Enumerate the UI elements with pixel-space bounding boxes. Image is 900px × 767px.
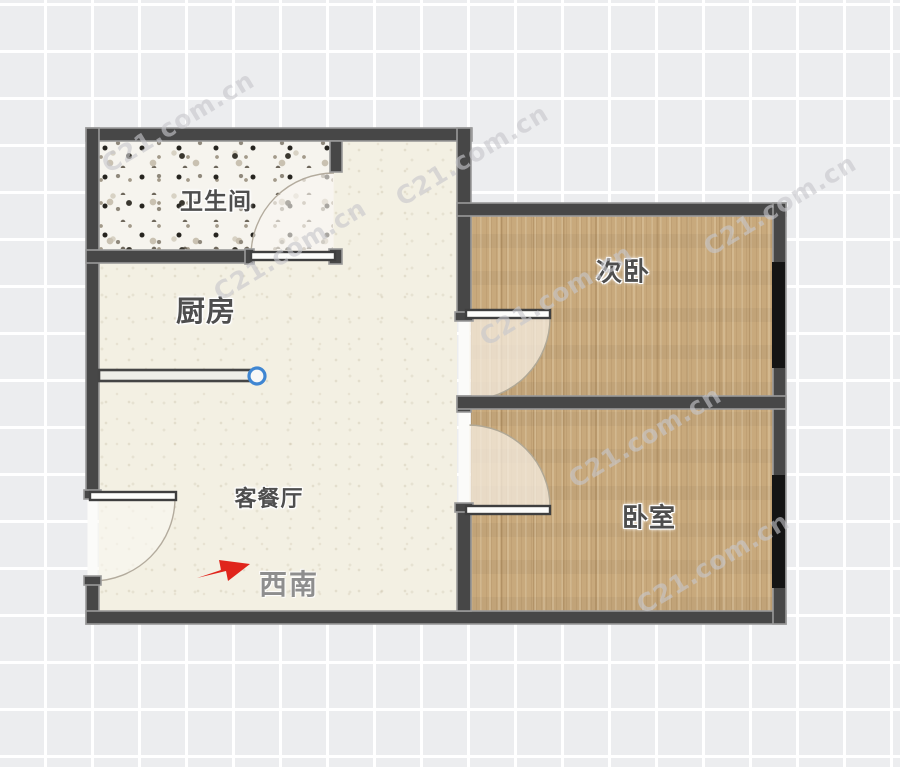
bedroom-door-swing [468,425,550,507]
orientation-arrow-icon[interactable] [197,560,250,581]
room-label-kitchen: 厨房 [176,288,236,330]
plan-drawing [0,0,900,767]
room-label-living-dining: 客餐厅 [234,481,303,513]
bathroom-door-leaf[interactable] [251,252,335,260]
kitchen-half-wall[interactable] [99,370,256,381]
bedroom-window[interactable] [772,475,785,588]
bathroom-door-swing [251,173,334,256]
second-bedroom-opening [459,320,470,397]
entrance-door-swing [92,498,175,581]
wall-top-left-section[interactable] [86,128,472,141]
orientation-label: 西南 [259,563,319,603]
wall-bottom[interactable] [86,611,786,624]
wall-cap-entrance-bottom [84,576,101,585]
wall-divider-lower[interactable] [457,505,471,611]
room-label-bedroom: 卧室 [622,498,676,535]
selection-handle[interactable] [249,368,265,384]
bedroom-door-leaf[interactable] [466,506,550,514]
wall-bedroom-divider[interactable] [457,396,786,409]
entrance-door-leaf[interactable] [90,492,176,500]
room-label-bathroom: 卫生间 [180,182,252,216]
second-bedroom-door-leaf[interactable] [466,310,550,318]
wall-divider-upper[interactable] [457,128,471,320]
room-label-second-bedroom: 次卧 [596,252,650,289]
bedroom-opening [459,412,470,504]
wall-bathroom-right-stub[interactable] [330,141,342,172]
second-bedroom-window[interactable] [772,262,785,368]
second-bedroom-door-swing [468,318,550,400]
wall-bedrooms-top[interactable] [457,203,786,216]
wall-left-upper[interactable] [86,128,99,497]
wall-bathroom-bottom[interactable] [86,250,252,263]
floorplan-canvas: 卫生间 厨房 客餐厅 次卧 卧室 西南 C21.com.cn C21.com.c… [0,0,900,767]
entrance-opening [88,499,98,577]
